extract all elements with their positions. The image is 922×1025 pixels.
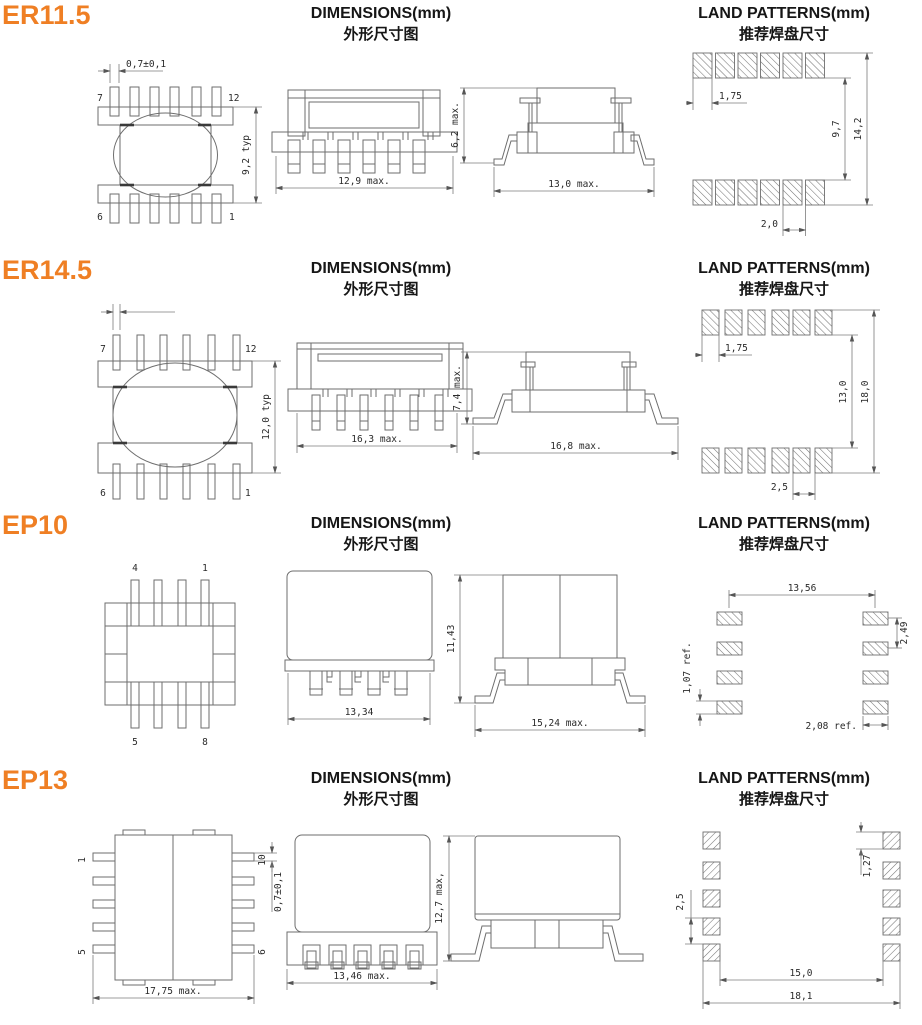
dim-pin-width: 0,7±0,1 bbox=[273, 872, 284, 912]
ep13-top-view: 1 5 10 6 0,7±0,1 17,75 max. bbox=[65, 820, 300, 1020]
dim-height: 12,7 max, bbox=[434, 872, 445, 923]
land-patterns-header: LAND PATTERNS(mm) 推荐焊盘尺寸 bbox=[684, 769, 884, 809]
dim-height: 12,0 typ bbox=[261, 394, 272, 440]
core-top-outline bbox=[93, 830, 254, 985]
dim-pad-width: 2,08 ref. bbox=[806, 721, 857, 732]
dim-width: 13,46 max. bbox=[333, 971, 390, 982]
er11-5-land-pattern: 1,75 9,7 14,2 2,0 bbox=[685, 50, 885, 240]
dimension-lines bbox=[686, 53, 873, 236]
bobbin-side-outline bbox=[494, 88, 654, 165]
dim-width: 16,3 max. bbox=[351, 434, 402, 445]
datasheet-page: ER11.5 DIMENSIONS(mm) 外形尺寸图 LAND PATTERN… bbox=[0, 0, 922, 1025]
bobbin-side-outline bbox=[473, 352, 678, 424]
pin-number: 8 bbox=[202, 737, 208, 748]
pin-number: 6 bbox=[257, 949, 268, 955]
er14-5-front-view: 16,3 max. bbox=[285, 335, 475, 470]
dim-center-span: 13,56 bbox=[788, 583, 817, 594]
case-front-outline bbox=[287, 835, 437, 969]
dimensions-subtitle: 外形尺寸图 bbox=[281, 535, 481, 555]
dimensions-header: DIMENSIONS(mm) 外形尺寸图 bbox=[281, 769, 481, 809]
dimensions-header: DIMENSIONS(mm) 外形尺寸图 bbox=[281, 514, 481, 554]
pin-number: 12 bbox=[228, 93, 239, 104]
dim-inner-span: 13,0 bbox=[838, 380, 849, 403]
dim-pitch: 2,5 bbox=[771, 482, 788, 493]
dim-height: 9,2 typ bbox=[241, 135, 252, 175]
dimension-lines bbox=[297, 413, 457, 453]
dim-inner-span: 15,0 bbox=[790, 968, 813, 979]
dimension-lines bbox=[98, 64, 262, 203]
dimensions-header: DIMENSIONS(mm) 外形尺寸图 bbox=[281, 259, 481, 299]
case-side-outline bbox=[451, 836, 643, 961]
solder-pads bbox=[703, 832, 900, 961]
bobbin-front-outline bbox=[288, 343, 472, 430]
er11-5-side-view: 6,2 max. 13,0 max. bbox=[452, 75, 667, 220]
dimension-lines bbox=[685, 822, 900, 1009]
dimension-lines bbox=[276, 156, 453, 194]
bobbin-top-outline bbox=[98, 335, 252, 499]
land-title: LAND PATTERNS(mm) bbox=[684, 514, 884, 535]
ep10-front-view: 13,34 bbox=[280, 565, 455, 745]
section-er14-5: ER14.5 DIMENSIONS(mm) 外形尺寸图 LAND PATTERN… bbox=[0, 255, 922, 510]
section-ep13: EP13 DIMENSIONS(mm) 外形尺寸图 LAND PATTERNS(… bbox=[0, 765, 922, 1025]
pin-number: 5 bbox=[132, 737, 138, 748]
dimensions-subtitle: 外形尺寸图 bbox=[281, 280, 481, 300]
land-title: LAND PATTERNS(mm) bbox=[684, 4, 884, 25]
pin-number: 1 bbox=[245, 488, 251, 499]
core-top-outline bbox=[105, 580, 235, 728]
bobbin-top-outline bbox=[98, 87, 233, 223]
land-subtitle: 推荐焊盘尺寸 bbox=[684, 790, 884, 810]
dim-pad-height: 1,27 bbox=[862, 855, 873, 878]
pin-number: 7 bbox=[100, 344, 106, 355]
product-label: ER11.5 bbox=[2, 0, 91, 31]
ep10-side-view: 11,43 15,24 max. bbox=[450, 565, 665, 750]
dimensions-subtitle: 外形尺寸图 bbox=[281, 25, 481, 45]
dim-outer-span: 18,0 bbox=[860, 380, 871, 403]
land-subtitle: 推荐焊盘尺寸 bbox=[684, 280, 884, 300]
dimensions-header: DIMENSIONS(mm) 外形尺寸图 bbox=[281, 4, 481, 44]
dim-height: 11,43 bbox=[446, 625, 457, 654]
pin-number: 7 bbox=[97, 93, 103, 104]
dim-height: 6,2 max. bbox=[450, 102, 461, 148]
dim-width: 12,9 max. bbox=[338, 176, 389, 187]
dim-pin-width: 0,7±0,1 bbox=[126, 59, 166, 70]
dim-width: 16,8 max. bbox=[550, 441, 601, 452]
pin-number: 6 bbox=[97, 212, 103, 223]
case-side-outline bbox=[475, 575, 645, 703]
pin-number: 1 bbox=[77, 857, 88, 863]
er14-5-side-view: 7,4 max. 16,8 max. bbox=[448, 330, 683, 480]
section-er11-5: ER11.5 DIMENSIONS(mm) 外形尺寸图 LAND PATTERN… bbox=[0, 0, 922, 255]
product-label: ER14.5 bbox=[2, 255, 92, 286]
er14-5-top-view: 12,0 typ 7 12 6 1 bbox=[85, 292, 290, 510]
product-label: EP13 bbox=[2, 765, 68, 796]
er11-5-top-view: 0,7±0,1 9,2 typ 7 12 6 1 bbox=[90, 58, 265, 230]
dim-width: 15,24 max. bbox=[531, 718, 588, 729]
pin-number: 1 bbox=[202, 563, 208, 574]
land-patterns-header: LAND PATTERNS(mm) 推荐焊盘尺寸 bbox=[684, 259, 884, 299]
land-title: LAND PATTERNS(mm) bbox=[684, 769, 884, 790]
dimensions-title: DIMENSIONS(mm) bbox=[281, 259, 481, 280]
dimension-lines bbox=[101, 304, 281, 473]
land-patterns-header: LAND PATTERNS(mm) 推荐焊盘尺寸 bbox=[684, 4, 884, 44]
dimensions-title: DIMENSIONS(mm) bbox=[281, 514, 481, 535]
dimensions-title: DIMENSIONS(mm) bbox=[281, 769, 481, 790]
pin-number: 6 bbox=[100, 488, 106, 499]
land-title: LAND PATTERNS(mm) bbox=[684, 259, 884, 280]
dim-inner-span: 9,7 bbox=[831, 120, 842, 137]
land-subtitle: 推荐焊盘尺寸 bbox=[684, 535, 884, 555]
er11-5-front-view: 12,9 max. bbox=[268, 78, 463, 213]
dimension-lines bbox=[454, 575, 645, 737]
dimensions-title: DIMENSIONS(mm) bbox=[281, 4, 481, 25]
dim-pitch: 2,49 bbox=[899, 621, 910, 644]
ep13-front-view: 13,46 max. bbox=[285, 820, 450, 1005]
pin-number: 12 bbox=[245, 344, 256, 355]
pin-number: 5 bbox=[77, 949, 88, 955]
ep10-top-view: 4 1 5 8 bbox=[95, 555, 245, 750]
dim-outer-span: 18,1 bbox=[790, 991, 813, 1002]
er14-5-land-pattern: 1,75 13,0 18,0 2,5 bbox=[692, 300, 892, 510]
dim-height: 7,4 max. bbox=[452, 365, 463, 411]
dim-pad-width: 1,75 bbox=[719, 91, 742, 102]
solder-pads bbox=[702, 310, 832, 473]
dim-width: 13,0 max. bbox=[548, 179, 599, 190]
dim-pitch: 2,0 bbox=[761, 219, 778, 230]
dim-width: 13,34 bbox=[345, 707, 374, 718]
bobbin-front-outline bbox=[272, 90, 457, 173]
ep13-land-pattern: 1,27 2,5 15,0 18,1 bbox=[678, 820, 913, 1015]
dimensions-subtitle: 外形尺寸图 bbox=[281, 790, 481, 810]
solder-pads bbox=[693, 53, 825, 205]
dim-pad-width: 1,75 bbox=[725, 343, 748, 354]
land-patterns-header: LAND PATTERNS(mm) 推荐焊盘尺寸 bbox=[684, 514, 884, 554]
dim-width: 17,75 max. bbox=[144, 986, 201, 997]
dim-outer-span: 14,2 bbox=[853, 118, 864, 141]
pin-number: 1 bbox=[229, 212, 235, 223]
ep13-side-view: 12,7 max, bbox=[435, 828, 660, 988]
product-label: EP10 bbox=[2, 510, 68, 541]
dim-pitch: 2,5 bbox=[675, 893, 686, 910]
section-ep10: EP10 DIMENSIONS(mm) 外形尺寸图 LAND PATTERNS(… bbox=[0, 510, 922, 765]
ep10-land-pattern: 13,56 1,07 ref. 2,49 2,08 ref. bbox=[680, 568, 915, 733]
land-subtitle: 推荐焊盘尺寸 bbox=[684, 25, 884, 45]
dim-pad-height: 1,07 ref. bbox=[682, 642, 693, 693]
dimension-lines bbox=[443, 836, 475, 961]
pin-number: 10 bbox=[257, 854, 268, 866]
pin-number: 4 bbox=[132, 563, 138, 574]
solder-pads bbox=[717, 612, 888, 714]
case-front-outline bbox=[285, 571, 434, 695]
